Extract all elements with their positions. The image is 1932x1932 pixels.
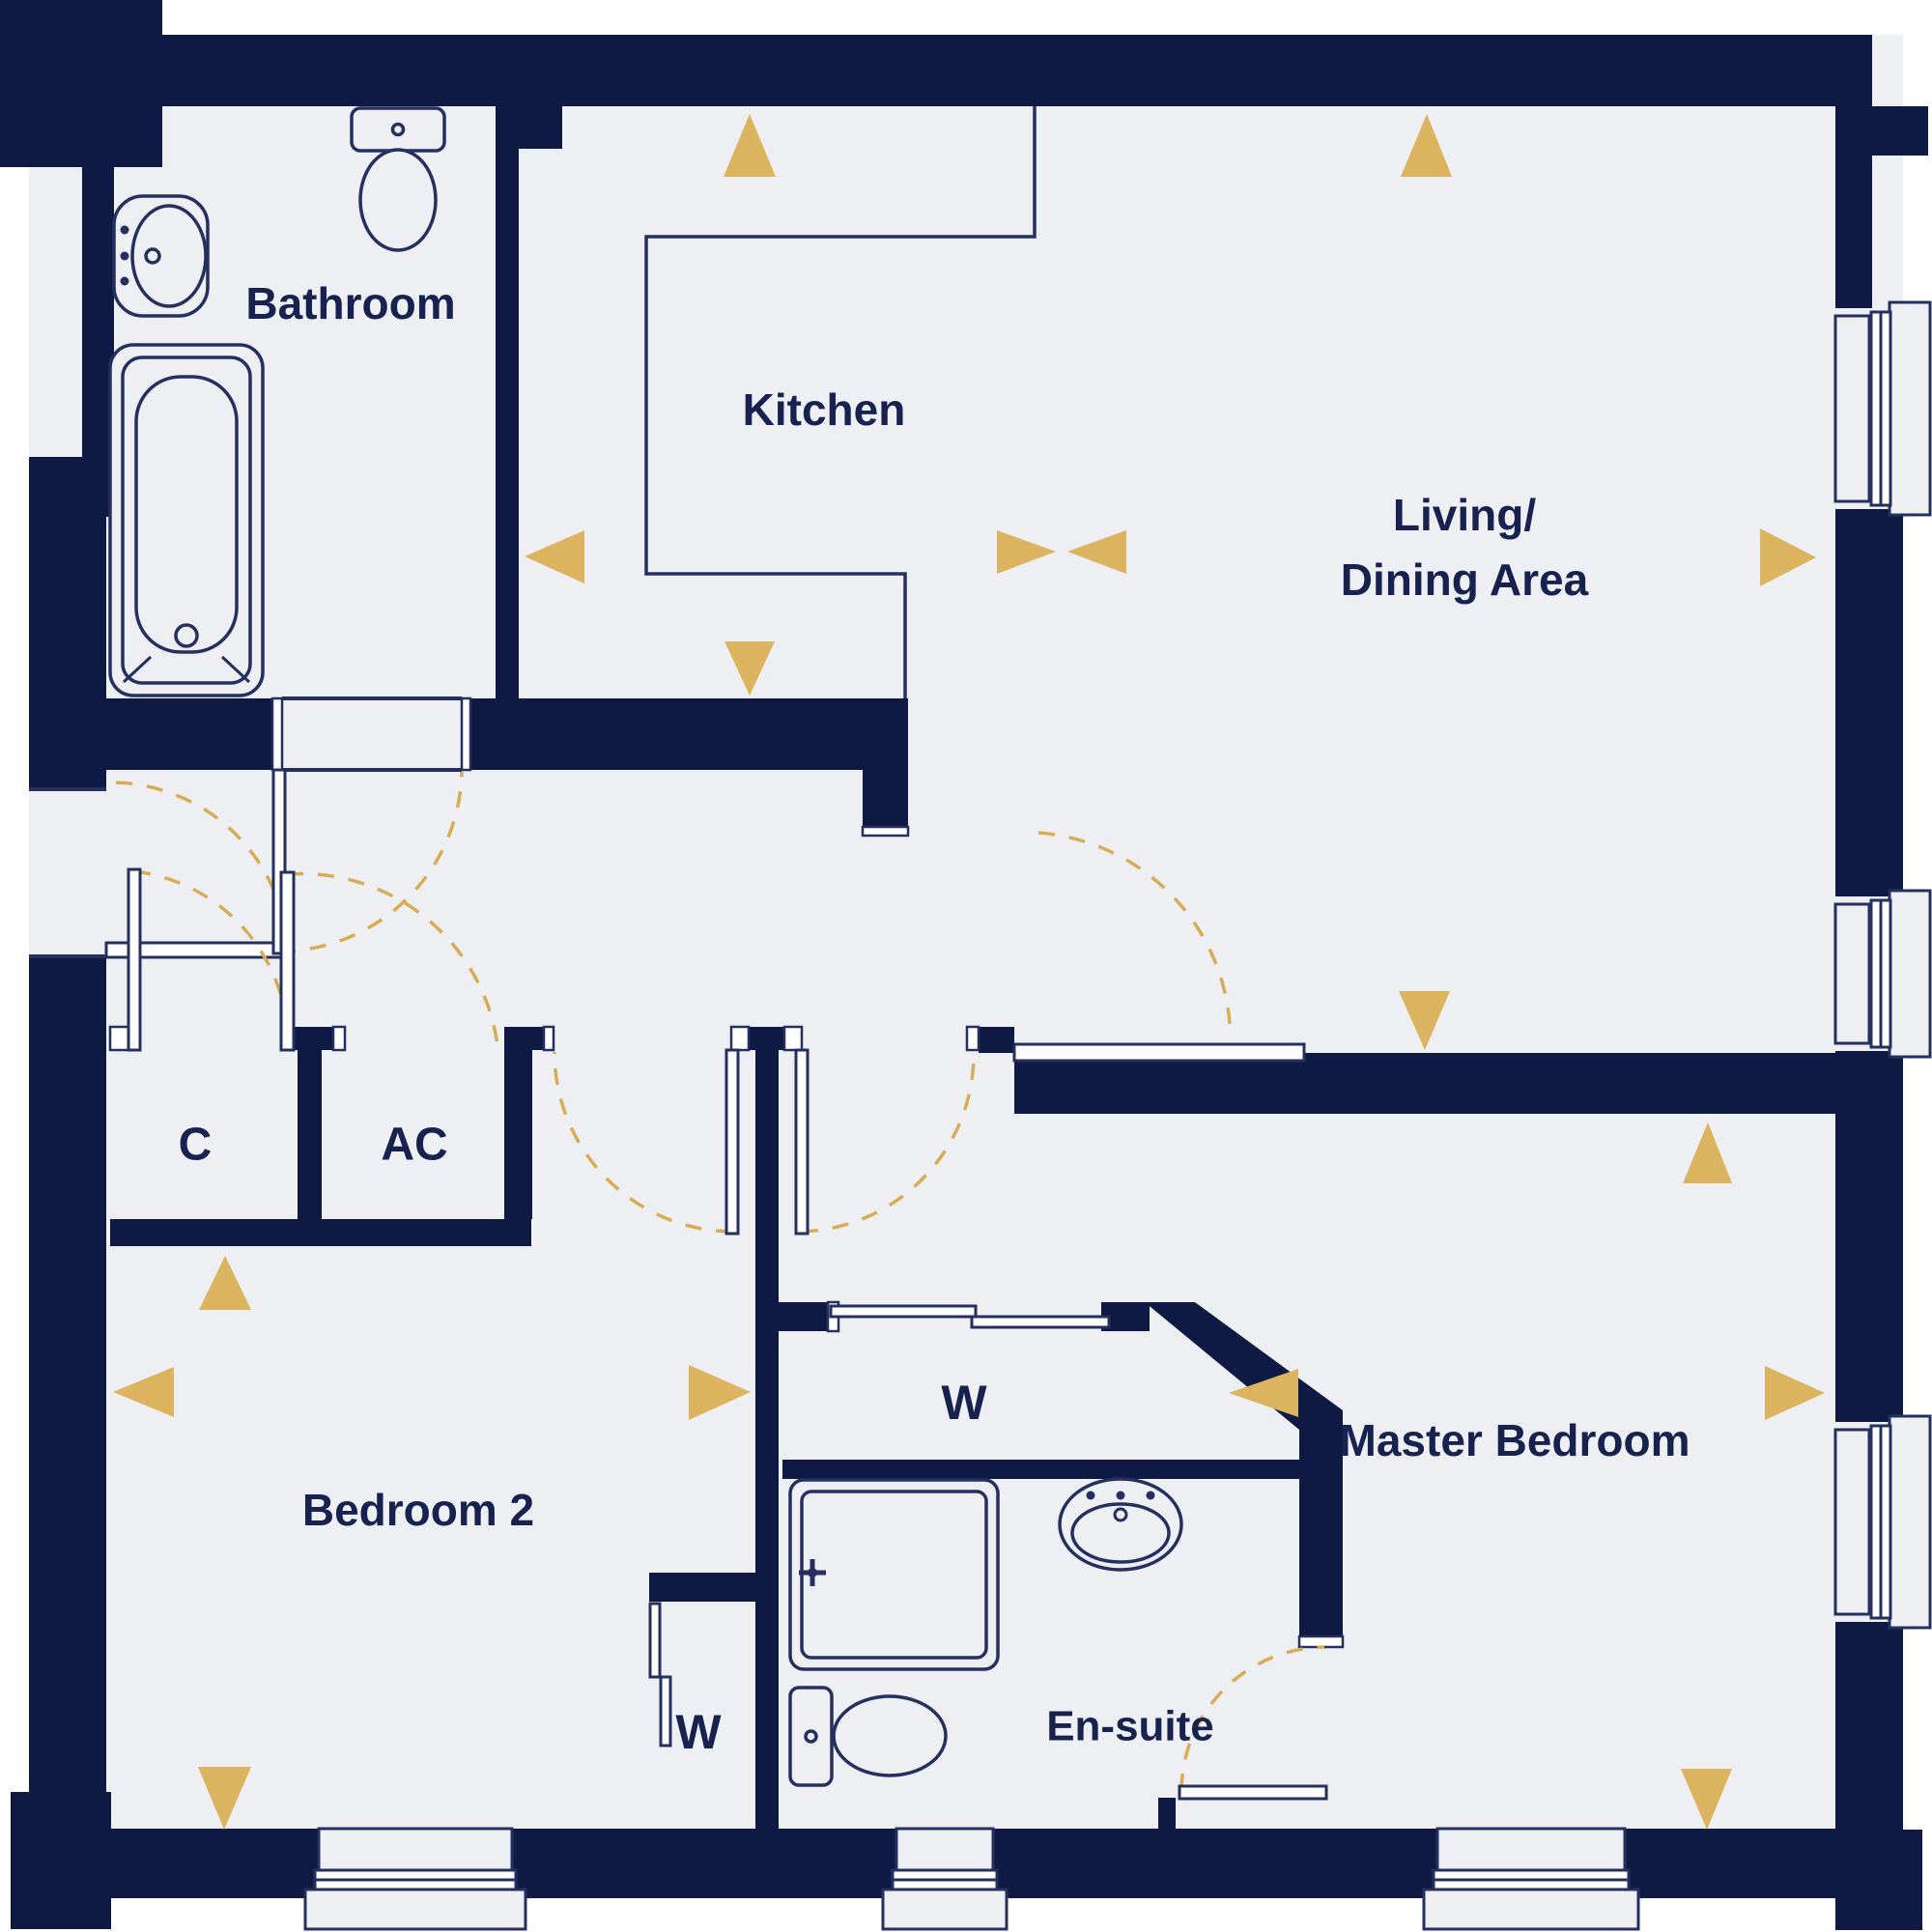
wall-ensuite-stub xyxy=(1158,1798,1176,1856)
wall-ac-right-cap xyxy=(504,1027,544,1050)
front-door-opening xyxy=(29,789,106,956)
floor-plan: BathroomKitchenLiving/Dining AreaCACBedr… xyxy=(0,0,1932,1932)
window-master-right-sill xyxy=(1889,1416,1930,1628)
ensuite-sink-plug xyxy=(1115,1509,1126,1520)
bathroom-toilet-bowl xyxy=(360,150,436,250)
ensuite-door-leaf xyxy=(1179,1786,1326,1799)
label-bedroom2: Bedroom 2 xyxy=(302,1485,534,1535)
wall-left-lower xyxy=(29,488,106,1829)
label-bathroom: Bathroom xyxy=(245,278,455,328)
wall-right-master xyxy=(1835,1114,1903,1422)
wall-w2-top xyxy=(649,1573,769,1602)
window-ensuite-reveal xyxy=(896,1829,993,1870)
ensuite-toilet-button xyxy=(806,1731,816,1742)
door-jamb-3 xyxy=(110,1027,129,1050)
door-jamb-6 xyxy=(544,1027,554,1050)
window-living-lower-reveal xyxy=(1835,904,1869,1043)
bathroom-door-opening xyxy=(282,698,462,770)
bathroom-sink-tap-1 xyxy=(121,226,129,235)
label-wardrobe-master: W xyxy=(941,1376,987,1430)
shower-inner xyxy=(802,1492,986,1658)
wall-right-lower xyxy=(1835,1622,1903,1830)
bathtub-tub xyxy=(136,377,237,652)
bathroom-toilet-button xyxy=(393,125,404,135)
label-living-line2: Dining Area xyxy=(1341,554,1589,605)
wall-right-upper xyxy=(1835,106,1872,308)
bathroom-sink-basin xyxy=(132,206,206,306)
door-jamb-2 xyxy=(863,827,908,836)
corner-bottom-right xyxy=(1835,1830,1922,1930)
wall-central-lower xyxy=(755,1302,779,1829)
closet-c-door-leaf xyxy=(128,869,140,1050)
ensuite-sink-tap-1 xyxy=(1087,1492,1095,1500)
wall-c-ac-divider-cap xyxy=(292,1027,333,1050)
wall-c-ac-divider xyxy=(298,1050,322,1219)
ensuite-sink-tap-2 xyxy=(1117,1492,1125,1500)
label-ensuite: En-suite xyxy=(1046,1703,1214,1750)
wall-central xyxy=(755,1050,779,1302)
label-living-line1: Living/ xyxy=(1393,490,1536,540)
bathroom-sink-plug xyxy=(146,249,159,263)
ensuite-sink-tap-3 xyxy=(1147,1492,1155,1500)
wall-central-cap xyxy=(749,1027,784,1050)
window-bedroom2-sill xyxy=(305,1889,526,1929)
wardrobe-bed2-sliding-bar-1 xyxy=(661,1677,670,1746)
wall-right-junction xyxy=(1835,1051,1903,1114)
wardrobe-master-sliding-bar-1 xyxy=(972,1317,1109,1327)
wall-hall-top xyxy=(106,698,908,770)
door-jamb-8 xyxy=(784,1027,802,1050)
wall-right-living-mid xyxy=(1835,509,1903,896)
wall-master-door-stub xyxy=(979,1027,1014,1053)
master-bedroom-door-leaf xyxy=(796,1050,808,1234)
wardrobe-bed2-sliding-bar-0 xyxy=(650,1604,660,1677)
wardrobe-master-sliding-bar-0 xyxy=(831,1306,976,1317)
door-jamb-5 xyxy=(333,1027,345,1050)
wall-hall-living-stub xyxy=(863,766,908,833)
wall-ac-right xyxy=(504,1050,532,1219)
wall-top xyxy=(29,35,1872,106)
bathroom-sink-tap-2 xyxy=(121,252,129,261)
label-wardrobe-bed2: W xyxy=(675,1705,722,1759)
living-room-door-leaf xyxy=(1014,1044,1304,1061)
wall-bath-kitchen-cap xyxy=(519,106,562,149)
window-master-bottom-reveal xyxy=(1437,1829,1625,1870)
window-living-upper-reveal xyxy=(1835,316,1869,501)
closet-ac-door-leaf xyxy=(281,872,294,1050)
shower-head-dot xyxy=(808,1568,817,1577)
window-bedroom2-reveal xyxy=(319,1829,512,1870)
door-jamb-0 xyxy=(272,698,282,770)
floor-plan-page: BathroomKitchenLiving/Dining AreaCACBedr… xyxy=(0,0,1932,1932)
bathroom-sink-tap-3 xyxy=(121,277,129,286)
window-living-upper-sill xyxy=(1889,302,1930,515)
wall-c-ac-bottom xyxy=(110,1219,531,1246)
label-closet-c: C xyxy=(179,1120,213,1171)
door-jamb-7 xyxy=(731,1027,749,1050)
label-master-bedroom: Master Bedroom xyxy=(1340,1415,1690,1465)
wall-ensuite-right xyxy=(1299,1449,1343,1647)
ensuite-toilet-bowl xyxy=(834,1696,946,1776)
wall-ensuite-top xyxy=(782,1460,1299,1479)
label-closet-ac: AC xyxy=(381,1120,447,1171)
window-living-lower-sill xyxy=(1889,891,1930,1057)
bathtub-drain xyxy=(176,625,197,646)
wall-bath-kitchen xyxy=(496,106,519,705)
door-jamb-1 xyxy=(462,698,470,770)
bedroom2-door-leaf xyxy=(726,1050,738,1234)
window-master-bottom-sill xyxy=(1424,1889,1638,1929)
label-kitchen: Kitchen xyxy=(743,384,906,435)
door-jamb-9 xyxy=(967,1027,979,1050)
window-master-right-reveal xyxy=(1835,1430,1869,1614)
window-ensuite-sill xyxy=(883,1889,1007,1929)
